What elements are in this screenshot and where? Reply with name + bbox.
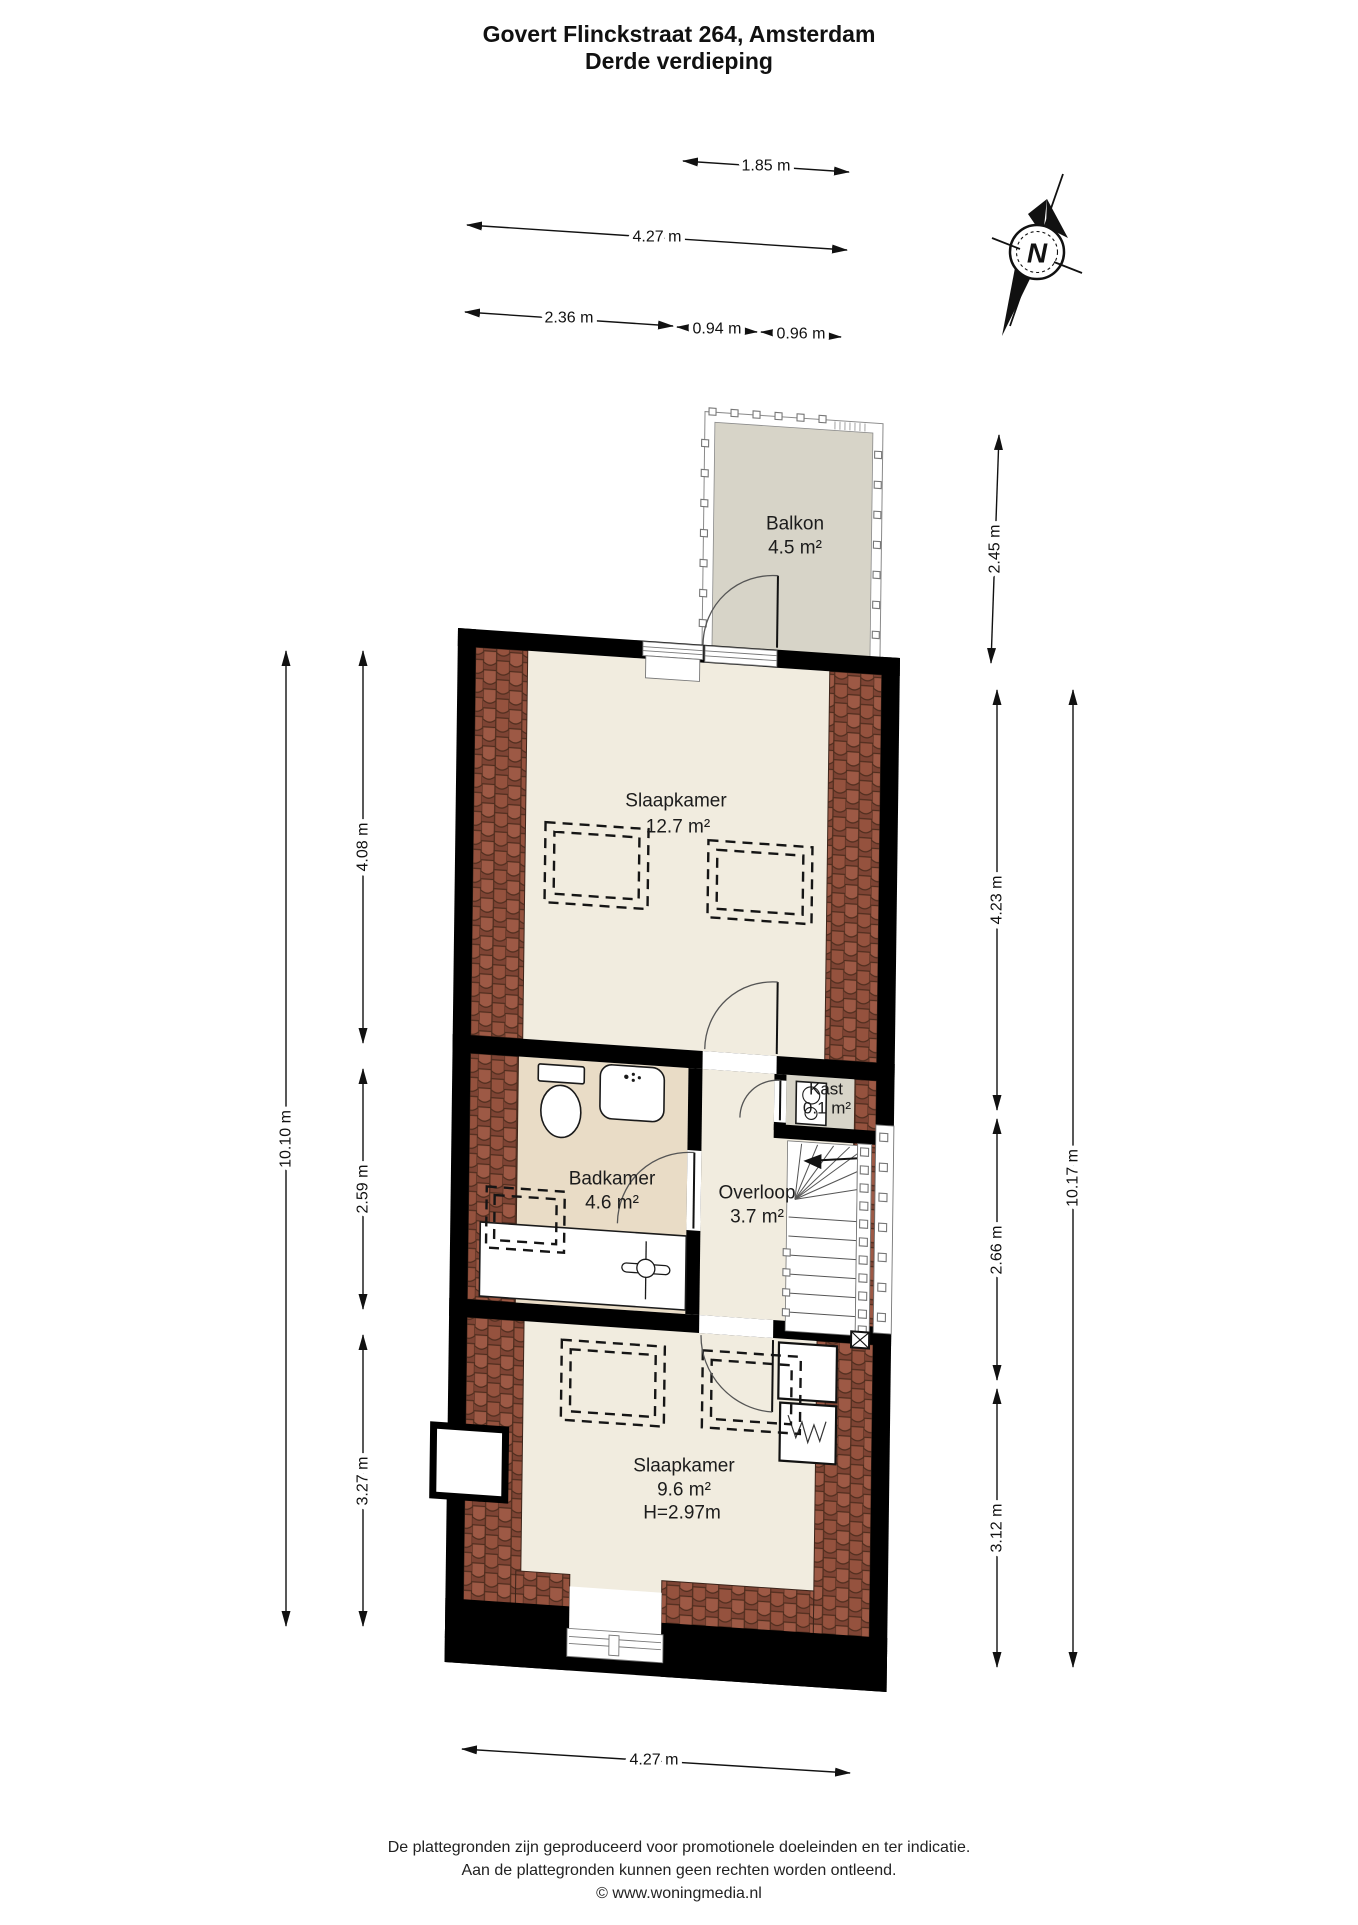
footer-copyright: © www.woningmedia.nl bbox=[596, 1885, 762, 1902]
dim-overloop-width: 0.94 m bbox=[693, 321, 742, 338]
dim-bottom-total: 4.27 m bbox=[630, 1752, 679, 1769]
label-balkon: Balkon bbox=[766, 514, 824, 535]
staircase bbox=[782, 1139, 872, 1339]
label-slaapkamer-boven: Slaapkamer bbox=[625, 791, 727, 812]
label-slaapkamer-boven-area: 12.7 m² bbox=[646, 817, 710, 838]
dim-trap-width: 0.96 m bbox=[777, 326, 826, 343]
dim-left-seg2: 2.59 m bbox=[355, 1165, 372, 1214]
dim-right-seg2: 2.66 m bbox=[989, 1226, 1006, 1275]
sink bbox=[600, 1064, 665, 1122]
dim-top-total: 4.27 m bbox=[633, 229, 682, 246]
footer-line1: De plattegronden zijn geproduceerd voor … bbox=[388, 1839, 971, 1856]
stairwell-void-railing bbox=[873, 1125, 894, 1334]
label-badkamer-area: 4.6 m² bbox=[585, 1193, 639, 1214]
floorplan-canvas: Govert Flinckstraat 264, Amsterdam Derde… bbox=[0, 0, 1358, 1920]
label-kast-area: 0.1 m² bbox=[803, 1099, 852, 1118]
dim-balcony-depth: 2.45 m bbox=[987, 525, 1004, 574]
label-overloop: Overloop bbox=[718, 1183, 795, 1204]
shower bbox=[479, 1222, 686, 1310]
label-slaapkamer-onder: Slaapkamer bbox=[633, 1456, 735, 1477]
label-slaapkamer-onder-height: H=2.97m bbox=[643, 1503, 721, 1524]
compass-north-label: N bbox=[1027, 238, 1048, 269]
label-badkamer: Badkamer bbox=[569, 1169, 656, 1190]
dim-right-seg1: 4.23 m bbox=[989, 876, 1006, 925]
bottom-window bbox=[567, 1586, 664, 1663]
shaft-box bbox=[851, 1331, 869, 1348]
floorplan-page: Govert Flinckstraat 264, Amsterdam Derde… bbox=[0, 0, 1358, 1920]
bedroom-upper-floor bbox=[471, 647, 882, 1063]
dim-badkamer-width: 2.36 m bbox=[545, 310, 594, 327]
dim-balcony-width: 1.85 m bbox=[742, 158, 791, 175]
footer-line2: Aan de plattegronden kunnen geen rechten… bbox=[461, 1862, 896, 1879]
label-balkon-area: 4.5 m² bbox=[768, 538, 822, 559]
label-overloop-area: 3.7 m² bbox=[730, 1207, 784, 1228]
label-kast: Kast bbox=[809, 1080, 843, 1099]
top-window bbox=[643, 642, 703, 682]
page-title: Govert Flinckstraat 264, Amsterdam bbox=[483, 21, 876, 47]
dim-left-seg3: 3.27 m bbox=[355, 1457, 372, 1506]
dim-right-total: 10.17 m bbox=[1065, 1149, 1082, 1207]
label-slaapkamer-onder-area: 9.6 m² bbox=[657, 1480, 711, 1501]
dim-left-total: 10.10 m bbox=[278, 1110, 295, 1168]
chimney-breast bbox=[433, 1425, 506, 1500]
dim-right-seg3: 3.12 m bbox=[989, 1504, 1006, 1553]
page-subtitle: Derde verdieping bbox=[585, 48, 773, 74]
dim-left-seg1: 4.08 m bbox=[355, 823, 372, 872]
